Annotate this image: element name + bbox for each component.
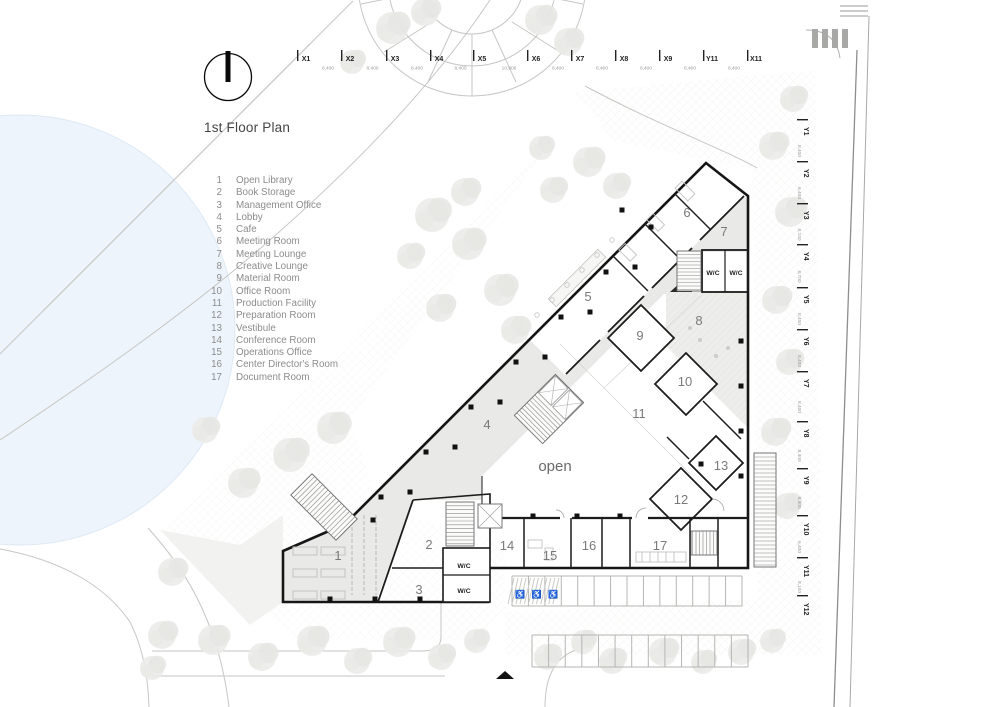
tree [525,5,558,35]
room-number-label: 11 [632,406,646,421]
column-dot [328,597,333,602]
legend-item-number: 16 [204,359,222,371]
legend-item: 14Conference Room [204,335,338,347]
tree [691,650,717,674]
room-number-label: 10 [678,374,692,389]
page-title: 1st Floor Plan [204,120,290,135]
legend-item-name: Operations Office [236,347,312,359]
legend-item: 9Material Room [204,273,338,285]
legend-item-name: Preparation Room [236,310,316,322]
column-dot [543,355,548,360]
legend-item-name: Meeting Lounge [236,249,306,261]
accessible-symbol: ♿ [532,589,542,599]
wc-label: W/C [457,563,470,570]
tree [376,12,411,44]
legend-item: 6Meeting Room [204,236,338,248]
axis-dimension: 8,400 [322,66,334,72]
legend-item: 1Open Library [204,175,338,187]
axis-dimension: 8,400 [796,355,802,367]
parking-row: ♿♿♿ [508,576,742,606]
tree [529,136,555,160]
column-dot [575,514,580,519]
tree [148,621,178,649]
legend-item-name: Material Room [236,273,300,285]
column-dot [739,384,744,389]
axis-label-right: Y6 [802,337,809,346]
axis-label-top: X2 [346,56,355,63]
room-number-label: 14 [500,538,514,553]
column-dot [739,339,744,344]
tree [397,243,425,269]
legend-item: 16Center Director's Room [204,359,338,371]
tree [451,178,481,206]
axis-dimension: 8,400 [796,401,802,413]
column-dot [408,490,413,495]
legend-item-number: 5 [204,224,222,236]
legend-item-number: 8 [204,261,222,273]
legend-item-number: 13 [204,323,222,335]
legend-item-number: 14 [204,335,222,347]
axis-dimension: 8,400 [684,66,696,72]
legend-item-number: 1 [204,175,222,187]
axis-tick [297,50,298,61]
axis-dimension: 8,400 [796,496,802,508]
tree [158,558,188,586]
water-feature [0,115,235,545]
legend-item: 10Office Room [204,286,338,298]
legend-item-number: 6 [204,236,222,248]
axis-dimension: 8,400 [796,449,802,461]
axis-label-top: X9 [664,56,673,63]
tree [573,147,606,177]
legend-item: 8Creative Lounge [204,261,338,273]
axis-label-right: Y7 [802,379,809,388]
column-dot [469,405,474,410]
entrance-arrow [496,671,514,679]
column-dot [514,360,519,365]
legend-item-name: Production Facility [236,298,316,310]
tree [452,228,487,260]
column-dot [588,310,593,315]
axis-tick [341,50,342,61]
axis-tick [797,595,808,596]
legend-item-name: Creative Lounge [236,261,308,273]
legend-item: 2Book Storage [204,187,338,199]
axis-label-right: Y1 [802,127,809,136]
axis-label-right: Y2 [802,169,809,178]
grid-axis-top: X18,400X28,400X38,400X48,400X510,906X68,… [297,50,762,72]
wc-label: W/C [706,270,719,277]
legend-item-number: 12 [204,310,222,322]
room-number-label: 8 [695,313,702,328]
axis-tick [527,50,528,61]
axis-label-right: Y9 [802,476,809,485]
axis-label-right: Y5 [802,295,809,304]
axis-tick [797,557,808,558]
axis-dimension: 8,400 [366,66,378,72]
axis-tick [703,50,704,61]
axis-tick [797,244,808,245]
column-dot [699,462,704,467]
axis-label-top: X7 [576,56,585,63]
column-dot [498,400,503,405]
axis-dimension: 8,400 [796,313,802,325]
elevator-box [478,504,502,528]
legend-item-number: 7 [204,249,222,261]
legend-item-name: Lobby [236,212,263,224]
axis-dimension: 8,400 [640,66,652,72]
axis-tick [797,119,808,120]
legend-item-name: Cafe [236,224,257,236]
axis-dimension: 8,400 [411,66,423,72]
open-courtyard-label: open [538,458,571,475]
axis-dimension: 10,906 [502,66,517,72]
axis-dimension: 6,400 [796,541,802,553]
legend-item-name: Conference Room [236,335,316,347]
room-number-label: 5 [584,289,591,304]
tree [501,316,531,344]
legend-item-name: Meeting Room [236,236,300,248]
column-dot [739,429,744,434]
room-number-label: 3 [415,582,422,597]
room-number-label: 7 [720,224,727,239]
column-dot [649,225,654,230]
column-dot [618,514,623,519]
room-number-label: 16 [582,538,596,553]
legend-item: 15Operations Office [204,347,338,359]
tree [534,644,562,670]
axis-tick [386,50,387,61]
axis-label-top: Y11 [706,56,718,63]
tree [198,625,231,655]
legend-item: 12Preparation Room [204,310,338,322]
column-dot [620,208,625,213]
legend-item-number: 9 [204,273,222,285]
room-number-label: 2 [425,537,432,552]
tree [464,629,490,653]
room-number-label: 6 [683,205,690,220]
axis-tick [571,50,572,61]
wc-label: W/C [729,270,742,277]
column-dot [379,495,384,500]
axis-label-top: X5 [478,56,487,63]
axis-label-right: Y11 [802,565,809,577]
axis-tick [797,371,808,372]
tree [649,638,679,666]
legend-item-name: Vestibule [236,323,276,335]
room-number-label: 4 [483,417,490,432]
legend-item-number: 15 [204,347,222,359]
tree [415,198,452,232]
legend-item: 3Management Office [204,200,338,212]
tree [603,173,631,199]
room-number-label: 15 [543,548,557,563]
axis-tick [473,50,474,61]
column-dot [559,315,564,320]
legend-item-number: 4 [204,212,222,224]
axis-dimension: 6,400 [796,187,802,199]
tree [248,643,278,671]
accessible-symbol: ♿ [548,589,558,599]
axis-label-top: X8 [620,56,629,63]
crosswalk [812,29,848,48]
axis-tick [797,161,808,162]
tree [728,639,756,665]
axis-tick [615,50,616,61]
legend-item-name: Office Room [236,286,290,298]
floor-plan-page: ♿♿♿ [0,0,1000,707]
stair [677,251,701,291]
axis-dimension: 8,400 [728,66,740,72]
legend-item: 4Lobby [204,212,338,224]
axis-label-top: X6 [532,56,541,63]
tree [411,0,441,26]
stair [754,453,776,567]
axis-dimension: 8,400 [596,66,608,72]
axis-tick [797,329,808,330]
legend-item-number: 10 [204,286,222,298]
axis-label-top: X11 [750,56,762,63]
column-dot [418,597,423,602]
column-dot [633,265,638,270]
column-dot [531,514,536,519]
room-number-label: 12 [674,492,688,507]
legend-item-number: 17 [204,372,222,384]
axis-tick [797,515,808,516]
tree [428,644,456,670]
axis-tick [747,50,748,61]
tree [599,648,627,674]
axis-tick [797,203,808,204]
stair [446,502,474,546]
legend-item-name: Book Storage [236,187,295,199]
legend-item: 17Document Room [204,372,338,384]
column-dot [739,474,744,479]
north-arrow [205,51,252,101]
room-number-label: 1 [334,548,341,563]
axis-dimension: 8,400 [454,66,466,72]
tree [192,417,220,443]
tree [540,177,568,203]
axis-dimension: 8,700 [796,270,802,282]
column-dot [604,270,609,275]
axis-dimension: 8,100 [796,581,802,593]
column-dot [373,597,378,602]
axis-label-right: Y10 [802,523,809,536]
axis-tick [797,468,808,469]
room-number-label: 13 [714,458,728,473]
axis-dimension: 8,400 [552,66,564,72]
legend-item-number: 3 [204,200,222,212]
axis-dimension: 8,100 [796,228,802,240]
tree [383,627,416,657]
axis-label-right: Y3 [802,211,809,220]
axis-tick [797,421,808,422]
room-legend: 1Open Library2Book Storage3Management Of… [204,175,338,384]
axis-label-right: Y4 [802,252,809,261]
tree [484,274,519,306]
axis-label-top: X4 [435,56,444,63]
legend-item: 11Production Facility [204,298,338,310]
legend-item: 7Meeting Lounge [204,249,338,261]
axis-label-top: X1 [302,56,311,63]
column-dot [371,518,376,523]
legend-item-name: Open Library [236,175,293,187]
tree [426,294,456,322]
room-number-label: 9 [636,328,643,343]
axis-tick [430,50,431,61]
column-dot [453,445,458,450]
axis-label-right: Y8 [802,429,809,438]
axis-dimension: 8,400 [796,145,802,157]
legend-item-number: 2 [204,187,222,199]
axis-label-right: Y12 [802,603,809,616]
cafe-furniture [535,238,615,318]
legend-item: 5Cafe [204,224,338,236]
legend-item-number: 11 [204,298,222,310]
stair [691,531,717,555]
column-dot [424,450,429,455]
accessible-symbol: ♿ [515,589,525,599]
room-number-label: 17 [653,538,667,553]
wc-label: W/C [457,588,470,595]
axis-label-top: X3 [391,56,400,63]
legend-item-name: Management Office [236,200,321,212]
axis-tick [797,287,808,288]
legend-item-name: Document Room [236,372,310,384]
legend-item-name: Center Director's Room [236,359,338,371]
tree [554,28,584,56]
floor-plan-canvas: ♿♿♿ [0,0,1000,707]
tree [344,648,372,674]
axis-tick [659,50,660,61]
legend-item: 13Vestibule [204,323,338,335]
